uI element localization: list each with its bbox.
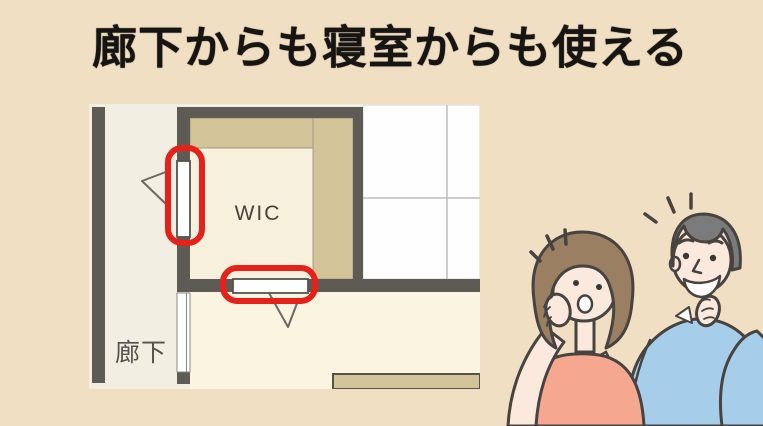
woman-neck (576, 320, 594, 352)
wall-wic-top (177, 107, 363, 118)
wall-outer-left (92, 107, 105, 383)
wall-stub-bottom (177, 372, 190, 384)
bedroom-furniture (333, 374, 480, 389)
wall-wic-left-upper (177, 107, 190, 161)
hallway-label: 廊下 (115, 339, 167, 367)
wall-wic-right (353, 107, 363, 292)
closet-shelf-right (313, 118, 353, 279)
man-eye-right (710, 255, 716, 261)
sliding-door-bedroom (177, 293, 190, 372)
adjacent-room-floor (363, 105, 480, 279)
wic-door-hallway (177, 161, 190, 237)
floorplan-diagram: WIC 廊下 (89, 104, 480, 389)
infographic-page: 廊下からも寝室からも使える (0, 0, 763, 426)
man-figure (628, 194, 763, 426)
woman-eye-left (573, 280, 579, 286)
wic-door-bedroom (233, 279, 308, 293)
woman-mouth (578, 296, 592, 313)
woman-eye-right (596, 284, 602, 290)
closet-shelf-top (190, 118, 313, 148)
man-surprise-marks (645, 194, 691, 222)
woman-figure (508, 230, 644, 426)
couple-illustration (480, 170, 763, 426)
man-eye-left (683, 253, 689, 259)
wic-label: WIC (235, 202, 282, 225)
page-title: 廊下からも寝室からも使える (0, 22, 763, 74)
